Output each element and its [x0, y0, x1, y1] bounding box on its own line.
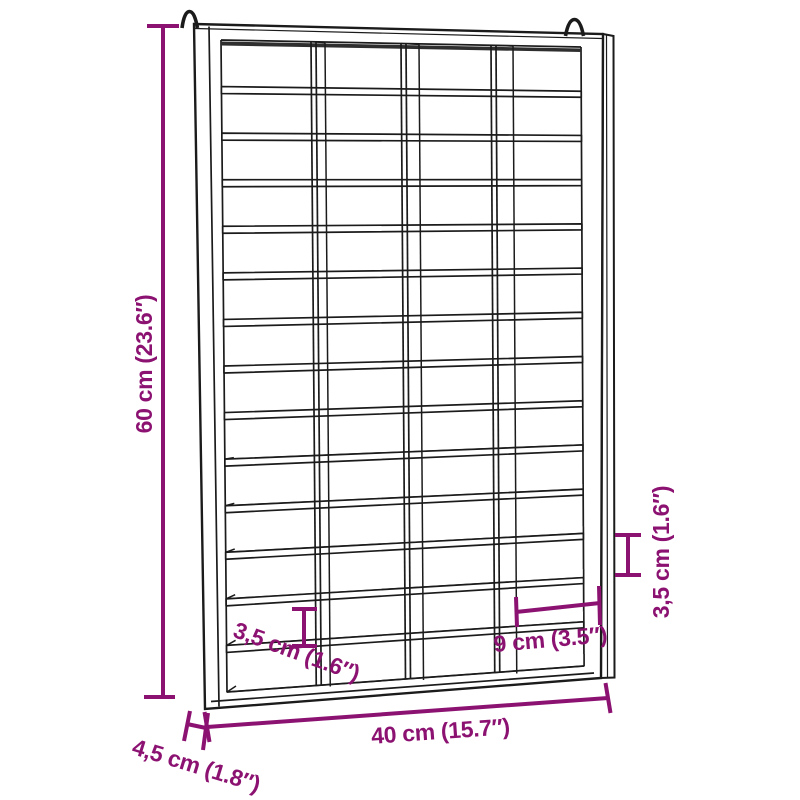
depth-dimension-line	[187, 724, 206, 728]
shelf-grid	[221, 42, 584, 692]
compartment-width-line	[516, 603, 600, 612]
dimension-height: 60 cm (23.6″)	[131, 26, 179, 697]
dimension-compartment-height-left: 3,5 cm (1.6″)	[230, 609, 363, 686]
depth-dimension-label: 4,5 cm (1.8″)	[129, 734, 263, 798]
width-dimension-label: 40 cm (15.7″)	[370, 713, 510, 749]
shelf-diagram-svg: 60 cm (23.6″) 40 cm (15.7″) 4,5 cm (1.8″…	[0, 0, 800, 800]
compartment-height-right-label: 3,5 cm (1.6″)	[648, 486, 674, 618]
product-dimension-diagram: 60 cm (23.6″) 40 cm (15.7″) 4,5 cm (1.8″…	[0, 0, 800, 800]
dimension-compartment-height-right: 3,5 cm (1.6″)	[615, 486, 674, 618]
height-dimension-label: 60 cm (23.6″)	[131, 295, 157, 434]
